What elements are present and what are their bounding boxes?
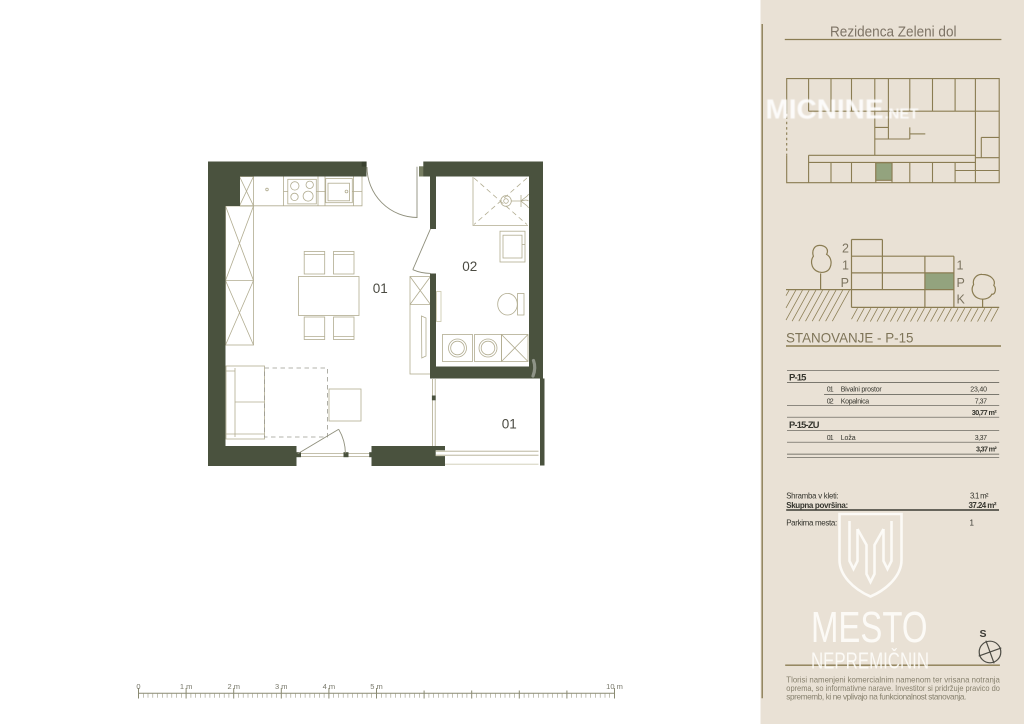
svg-text:01: 01: [373, 281, 388, 296]
svg-text:P-15: P-15: [789, 372, 807, 383]
svg-text:Parkirna mesta:: Parkirna mesta:: [786, 518, 837, 527]
svg-text:0: 0: [136, 682, 140, 691]
svg-text:Skupna površina:: Skupna površina:: [786, 501, 848, 510]
svg-text:K: K: [957, 293, 966, 307]
svg-text:Bivalni prostor: Bivalni prostor: [841, 386, 883, 393]
svg-text:7,37: 7,37: [975, 399, 987, 406]
svg-text:S: S: [980, 628, 987, 640]
svg-text:MICNINE: MICNINE: [766, 94, 884, 125]
svg-text:01: 01: [827, 386, 834, 393]
svg-text:4 m: 4 m: [323, 682, 336, 691]
svg-text:Kopalnica: Kopalnica: [841, 399, 870, 406]
svg-text:3,37: 3,37: [975, 435, 987, 442]
svg-text:Rezidenca Zeleni dol: Rezidenca Zeleni dol: [830, 25, 957, 41]
svg-text:02: 02: [827, 399, 834, 406]
svg-text:1 m: 1 m: [180, 682, 193, 691]
svg-text:37.24 m²: 37.24 m²: [969, 501, 997, 510]
svg-text:P-15-ZU: P-15-ZU: [789, 420, 820, 430]
svg-text:30,77 m²: 30,77 m²: [972, 408, 998, 417]
svg-text:MESTO: MESTO: [811, 603, 928, 652]
svg-text:3 m: 3 m: [275, 682, 288, 691]
svg-text:1: 1: [957, 259, 964, 273]
svg-text:sprememb, ki ne vplivajo na fu: sprememb, ki ne vplivajo na funkcionalno…: [786, 692, 966, 701]
svg-text:01: 01: [827, 435, 834, 442]
svg-text:3,37 m²: 3,37 m²: [976, 445, 997, 454]
svg-text:STANOVANJE - P-15: STANOVANJE - P-15: [786, 330, 914, 346]
svg-text:P: P: [957, 276, 965, 290]
svg-text:01: 01: [502, 417, 517, 432]
svg-text:Loža: Loža: [841, 435, 856, 442]
svg-text:NEPREMIČNIN: NEPREMIČNIN: [811, 647, 929, 674]
svg-text:2: 2: [842, 242, 849, 256]
svg-text:10 m: 10 m: [606, 682, 623, 691]
svg-text:P: P: [841, 276, 849, 290]
svg-text:23,40: 23,40: [970, 386, 987, 393]
svg-text:5 m: 5 m: [370, 682, 383, 691]
svg-text:3.1 m²: 3.1 m²: [970, 492, 989, 501]
svg-text:2 m: 2 m: [227, 682, 240, 691]
svg-text:1: 1: [970, 518, 975, 527]
svg-text:1: 1: [842, 259, 849, 273]
svg-text:Shramba v kleti:: Shramba v kleti:: [786, 492, 839, 501]
svg-text:.NET: .NET: [885, 107, 919, 123]
svg-text:02: 02: [462, 259, 477, 274]
